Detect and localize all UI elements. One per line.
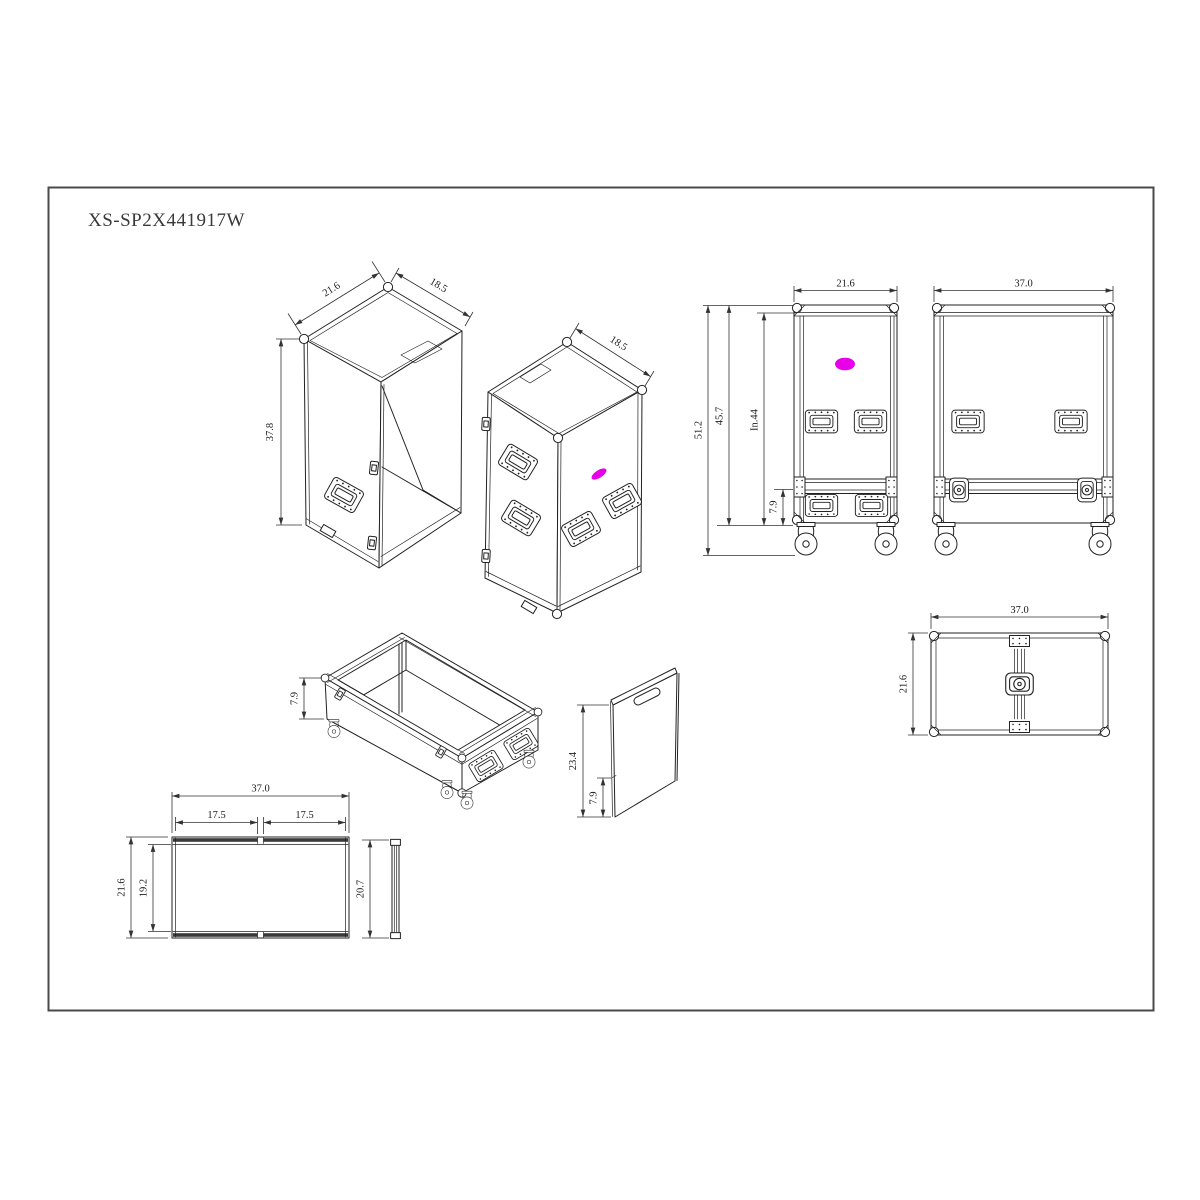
latch [367,536,376,550]
hinge-plate [1010,636,1030,647]
dim-top-depth: 21.6 [899,675,910,693]
dim-front-inner-height: In.44 [750,408,761,431]
seam-plate [1102,477,1113,497]
dim-lid-height: 37.8 [265,423,276,441]
geometry [391,839,401,938]
view-panel-profile: 20.7 [356,839,401,938]
dim-front-total-height: 51.2 [694,421,705,439]
panel-profile-outline [392,840,399,938]
latch [482,417,491,430]
view-front-elevation: 21.6 51.2 45.7 In.44 7.9 [694,279,899,556]
technical-drawing: XS-SP2X441917W 21.6 18.5 [0,0,1200,1200]
caster [1089,523,1111,556]
dim-tray-plan-width: 37.0 [251,784,269,795]
caster [795,523,817,556]
caster [461,791,473,809]
geometry [482,337,647,618]
recessed-handle [854,410,886,433]
geometry [929,631,1109,736]
dim-top-width: 37.0 [1010,605,1028,616]
recessed-handle [805,410,837,433]
hinge-notch [258,838,264,843]
drawing-title: XS-SP2X441917W [88,210,245,231]
dim-tray-plan-depth: 21.6 [117,878,128,896]
caster [935,523,957,556]
butterfly-latch [1006,673,1034,695]
seam-plate [794,477,805,497]
hinge-notch [258,933,264,938]
dim-tray-plan-left-half: 17.5 [207,810,225,821]
drawing-canvas: XS-SP2X441917W 21.6 18.5 [0,0,1200,1200]
seam-plate [934,477,945,497]
dim-tray-plan-inner-depth: 19.2 [139,879,150,897]
tray-plan-outline [172,837,349,938]
dimensions: 23.4 7.9 [568,705,611,817]
dim-front-lid-height: 7.9 [769,500,780,513]
geometry [321,633,542,809]
hinge-plate [1010,722,1030,733]
geometry [611,668,680,817]
butterfly-latch [950,478,969,502]
geometry [299,282,462,568]
dim-lid-depth: 18.5 [428,276,449,295]
recessed-handle [805,494,837,516]
view-lid-isometric: 21.6 18.5 37.8 [265,262,473,569]
dim-front-body-height: 45.7 [715,407,726,425]
recessed-handle [1055,410,1087,433]
dim-side-width: 37.0 [1014,279,1032,290]
highlight-mark-front [835,358,855,371]
dimensions: 20.7 [356,840,390,938]
geometry [172,837,349,938]
view-tray-plan: 37.0 17.5 17.5 21.6 19.2 [117,784,350,939]
latch [369,461,378,475]
dim-divider-bottom: 7.9 [589,791,600,804]
dim-panel-profile-height: 20.7 [356,880,367,898]
view-divider-panel: 23.4 7.9 [568,668,679,817]
dim-case-depth: 18.5 [608,334,629,353]
dimensions: 7.9 [290,678,325,719]
dim-divider-height: 23.4 [568,751,579,770]
seam-plate [886,477,897,497]
caster [875,523,897,556]
dim-tray-plan-right-half: 17.5 [295,810,313,821]
dim-tray-height: 7.9 [290,692,301,705]
dim-front-width: 21.6 [836,279,854,290]
geometry [792,303,898,555]
view-top: 37.0 21.6 [899,605,1110,737]
dimensions: 37.0 [934,279,1113,303]
geometry [932,303,1114,555]
butterfly-latch [1078,478,1097,502]
view-tray-isometric: 7.9 [290,633,542,809]
view-case-isometric: 18.5 [482,323,654,619]
view-side-elevation: 37.0 [932,279,1114,556]
dim-lid-width: 21.6 [321,280,342,299]
recessed-handle [952,410,984,433]
latch [482,549,491,562]
recessed-handle [855,494,887,516]
